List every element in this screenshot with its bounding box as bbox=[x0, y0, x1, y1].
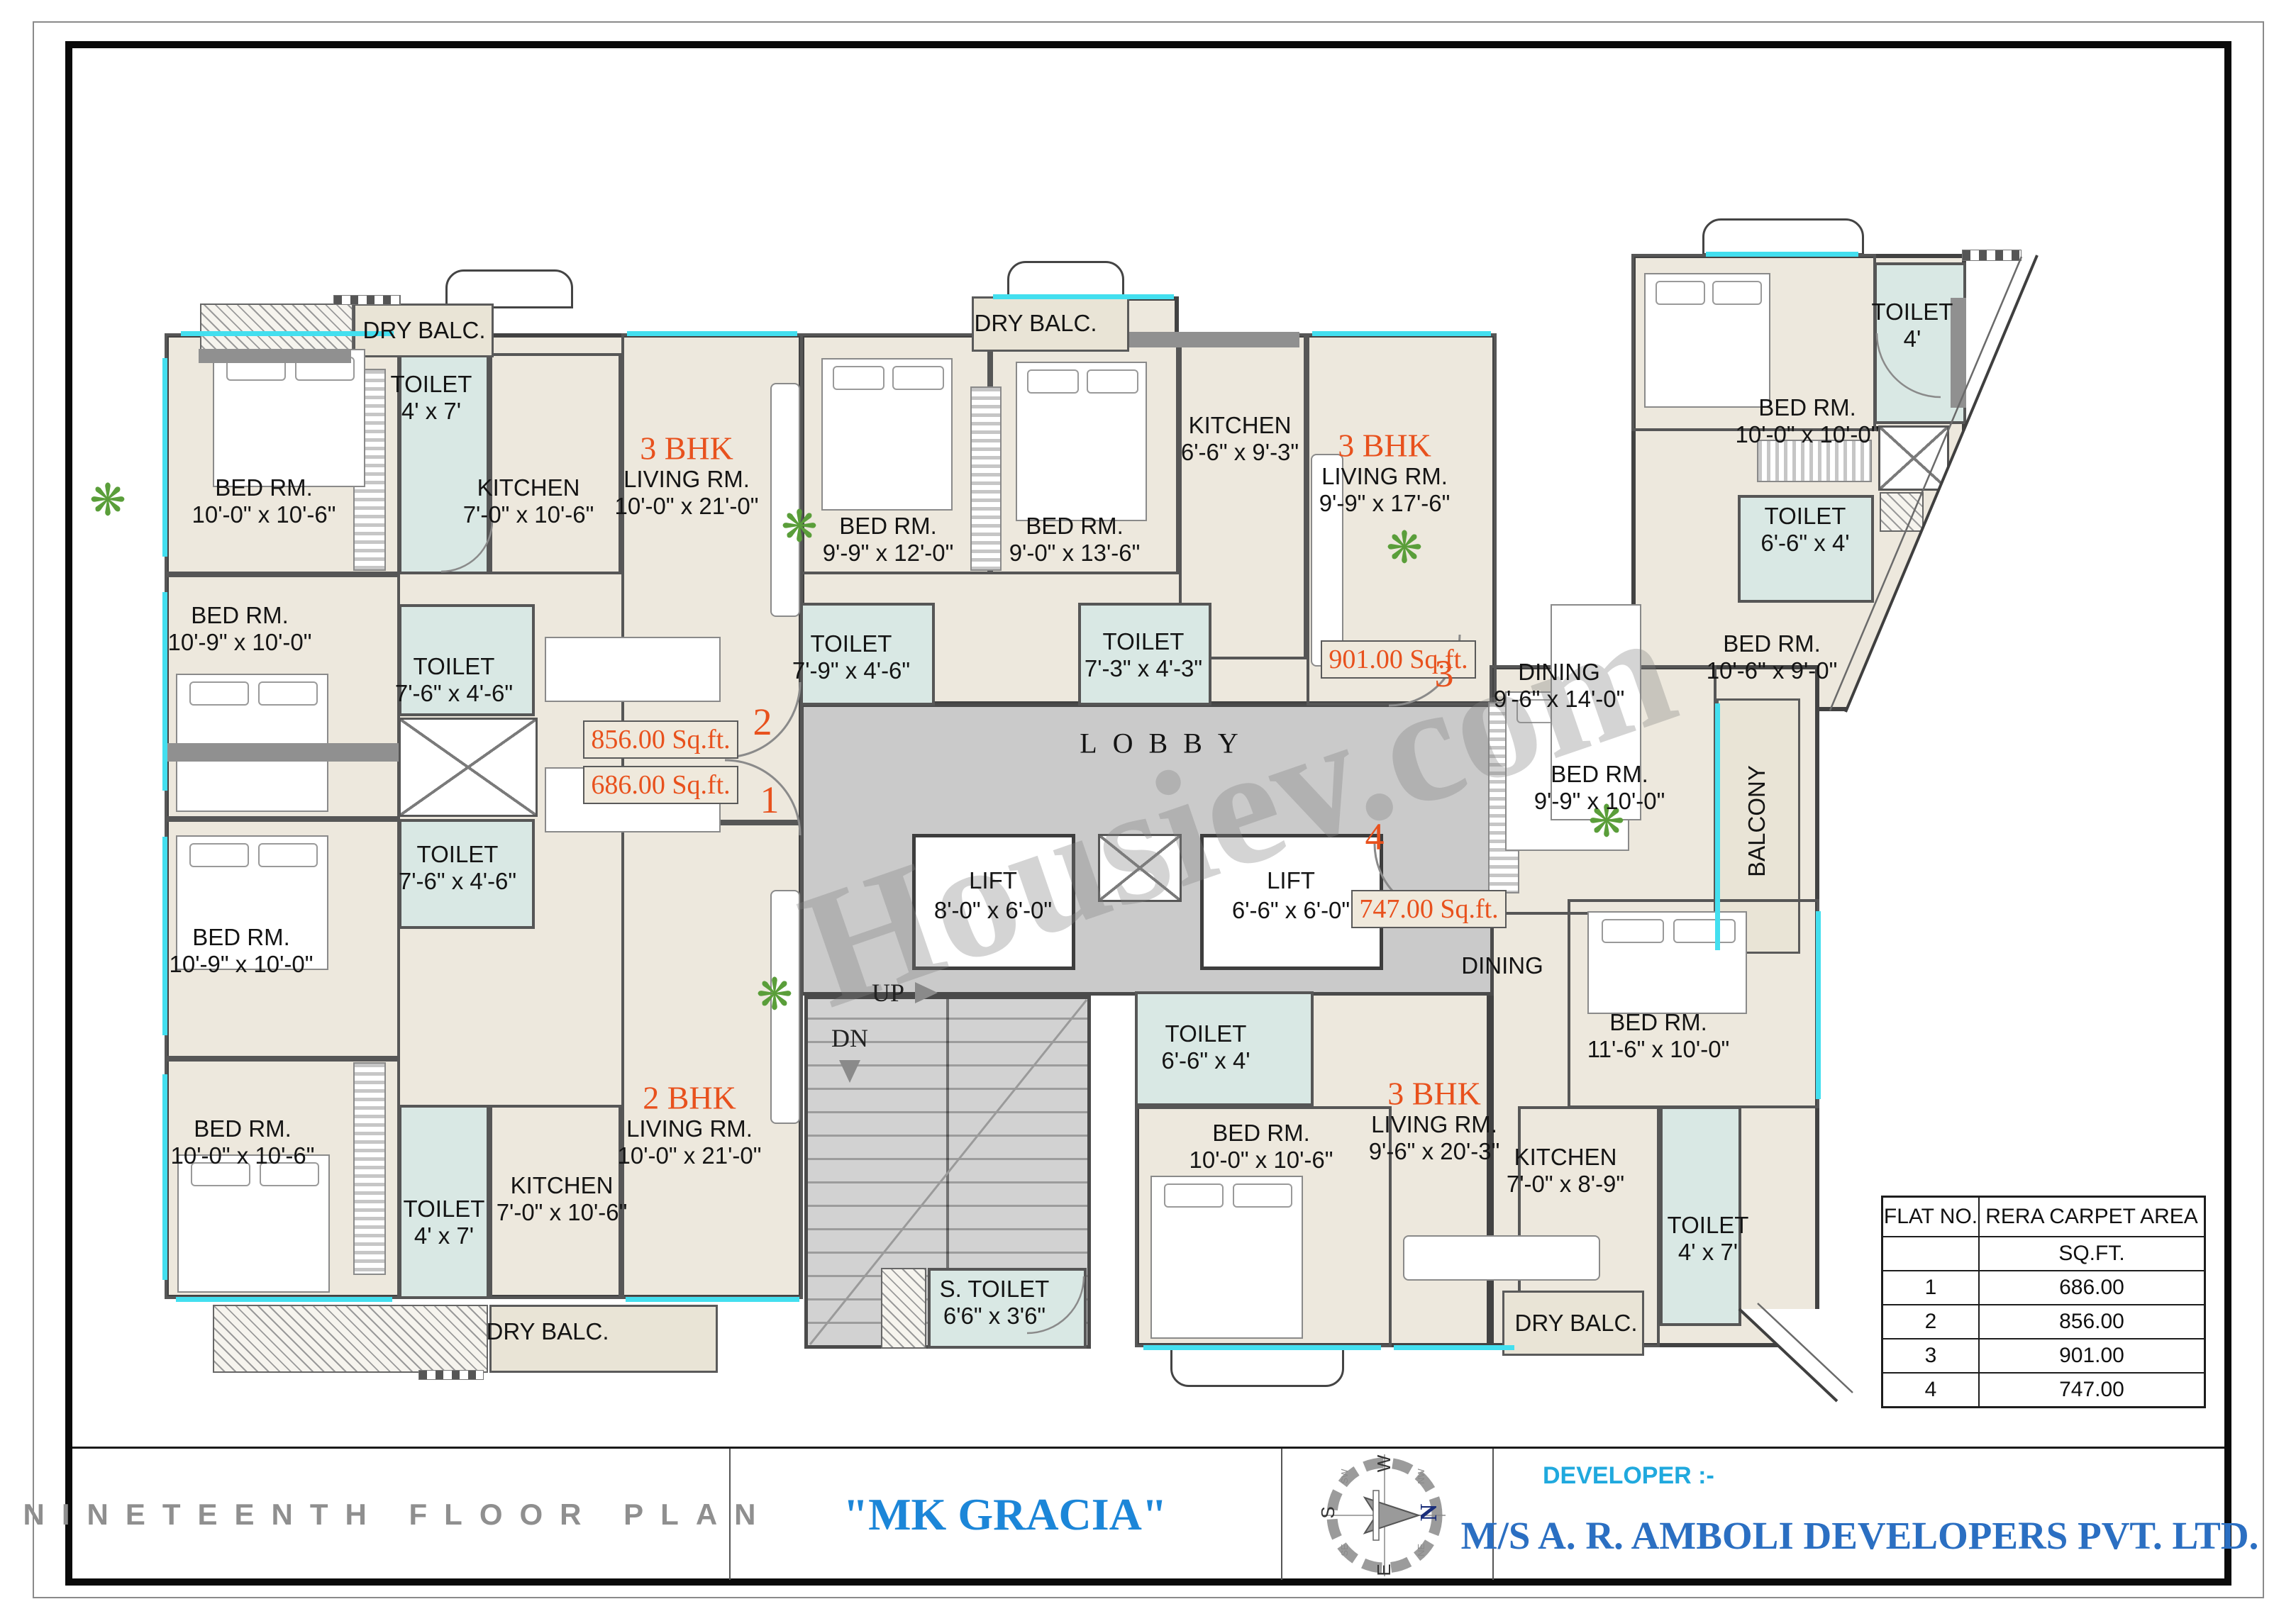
pillow bbox=[189, 843, 249, 867]
room-dims-toilet-f2b: 7'-6" x 4'-6" bbox=[395, 680, 513, 707]
room-label-bed-f4a: BED RM. bbox=[1551, 761, 1648, 788]
developer-name: M/S A. R. AMBOLI DEVELOPERS PVT. LTD. bbox=[1495, 1449, 2224, 1601]
room-label-dry-balc-f1: DRY BALC. bbox=[486, 1318, 609, 1345]
duct-between-lifts bbox=[1098, 834, 1182, 902]
table-header-carpet-area: RERA CARPET AREA bbox=[1978, 1198, 2204, 1236]
room-label-bed-f3a: BED RM. bbox=[839, 513, 937, 540]
room-label-bed-tr: BED RM. bbox=[1758, 394, 1856, 421]
room-dims-kitchen-f4: 7'-0" x 8'-9" bbox=[1507, 1171, 1624, 1198]
table-cell-area: 686.00 bbox=[1978, 1271, 2204, 1304]
flat-dims-f4: 9'-6" x 20'-3" bbox=[1369, 1138, 1500, 1165]
room-dims-dining-f3: 9'-6" x 14'-0" bbox=[1494, 686, 1625, 713]
table-cell-flat: 2 bbox=[1883, 1305, 1978, 1338]
footer-divider bbox=[1281, 1449, 1282, 1580]
flat-type-f2: 3 BHK bbox=[640, 430, 733, 467]
bay-window-top-right bbox=[1702, 218, 1864, 255]
compass-south: S bbox=[1317, 1506, 1338, 1518]
room-label-dry-balc-tl: DRY BALC. bbox=[362, 317, 485, 344]
flat-dims-f1: 10'-0" x 21'-0" bbox=[618, 1142, 762, 1169]
room-dims-kitchen-f1: 7'-0" x 10'-6" bbox=[497, 1199, 628, 1226]
balc-wall bbox=[1129, 332, 1299, 347]
room-dims-kitchen-f2: 7'-0" x 10'-6" bbox=[463, 501, 594, 528]
furniture-bed bbox=[213, 349, 365, 487]
room-label-dry-balc-f4: DRY BALC. bbox=[1514, 1310, 1637, 1337]
pillow bbox=[1602, 919, 1664, 943]
plant-icon: ❋ bbox=[1386, 522, 1423, 574]
table-row: 4 747.00 bbox=[1883, 1372, 2204, 1406]
table-cell-flat: 1 bbox=[1883, 1271, 1978, 1304]
window bbox=[162, 358, 167, 557]
room-label-toilet-tr: TOILET bbox=[1872, 299, 1953, 325]
lift2-label: LIFT bbox=[1267, 867, 1315, 894]
room-dims-kitchen-f3: 6'-6" x 9'-3" bbox=[1181, 439, 1299, 466]
pillow bbox=[1087, 369, 1138, 394]
room-label-toilet-f3b: TOILET bbox=[1103, 628, 1185, 655]
room-label-kitchen-f4: KITCHEN bbox=[1514, 1144, 1617, 1171]
pillow bbox=[189, 681, 249, 706]
table-cell-flat: 3 bbox=[1883, 1339, 1978, 1372]
room-dims-toilet-f1a: 7'-6" x 4'-6" bbox=[399, 868, 516, 895]
table-row: 3 901.00 bbox=[1883, 1338, 2204, 1372]
window bbox=[181, 331, 394, 336]
compass-icon: W S E N SW NW SE NE bbox=[1314, 1448, 1455, 1583]
room-dims-bed-f3a: 9'-9" x 12'-0" bbox=[823, 540, 954, 567]
room-dims-bed-f4a: 9'-9" x 10'-0" bbox=[1534, 788, 1665, 815]
flat-type-f3: 3 BHK bbox=[1338, 427, 1431, 464]
compass-se: SE bbox=[1339, 1544, 1350, 1556]
window bbox=[176, 1297, 392, 1302]
dotted-parapet bbox=[1962, 250, 2022, 261]
furniture-bed bbox=[821, 358, 953, 511]
room-label-s-toilet: S. TOILET bbox=[940, 1276, 1050, 1303]
flat-dims-f2: 10'-0" x 21'-0" bbox=[615, 493, 759, 520]
room-label-kitchen-f3: KITCHEN bbox=[1189, 412, 1292, 439]
flat-marker-m2: 2 bbox=[753, 700, 772, 744]
table-row: 2 856.00 bbox=[1883, 1304, 2204, 1338]
room-label-kitchen-f2: KITCHEN bbox=[477, 474, 580, 501]
window bbox=[162, 1074, 167, 1280]
room-dims-toilet-tr: 4' bbox=[1904, 325, 1921, 352]
dn-arrow-icon bbox=[839, 1060, 860, 1083]
window bbox=[626, 1297, 799, 1302]
window bbox=[1394, 1345, 1514, 1350]
room-label-bed-f4c: BED RM. bbox=[1212, 1120, 1310, 1147]
room-dims-toilet-tl: 4' x 7' bbox=[401, 398, 461, 425]
room-dims-bed-f4c: 10'-0" x 10'-6" bbox=[1189, 1147, 1333, 1174]
room-label-toilet-f2b: TOILET bbox=[414, 653, 495, 680]
flat-type-f4: 3 BHK bbox=[1387, 1075, 1481, 1113]
area-box-a856: 856.00 Sq.ft. bbox=[583, 720, 738, 759]
compass-north: N bbox=[1416, 1503, 1442, 1521]
pillow bbox=[1656, 281, 1705, 305]
room-dims-toilet-f3a: 7'-9" x 4'-6" bbox=[792, 657, 910, 684]
stairs-up-label: UP bbox=[872, 978, 904, 1008]
lift1-dims: 8'-0" x 6'-0" bbox=[934, 897, 1052, 924]
table-cell-flat: 4 bbox=[1883, 1374, 1978, 1406]
window bbox=[627, 331, 797, 336]
window bbox=[1715, 703, 1720, 950]
window bbox=[1312, 331, 1491, 336]
pillow bbox=[833, 366, 884, 390]
up-arrow-icon bbox=[915, 982, 938, 1003]
compass-needle-tail bbox=[1373, 1491, 1379, 1540]
room-label-toilet-r: TOILET bbox=[1765, 503, 1846, 530]
room-dims-s-toilet: 6'6" x 3'6" bbox=[943, 1303, 1046, 1330]
pillow bbox=[892, 366, 944, 390]
flat-dims-f3: 9'-9" x 17'-6" bbox=[1319, 490, 1451, 517]
table-header-row: FLAT NO. RERA CARPET AREA bbox=[1883, 1198, 2204, 1236]
table-unit-blank bbox=[1883, 1237, 1978, 1270]
plant-icon: ❋ bbox=[781, 501, 818, 552]
room-dims-toilet-f4a: 4' x 7' bbox=[1678, 1239, 1738, 1266]
lobby-label: LOBBY bbox=[1080, 727, 1254, 760]
furniture-bed bbox=[1150, 1176, 1303, 1339]
hatch-dry-balc-f1 bbox=[213, 1305, 488, 1373]
room-dims-toilet-r: 6'-6" x 4' bbox=[1760, 530, 1849, 557]
room-label-toilet-f4b: TOILET bbox=[1165, 1020, 1247, 1047]
duct-tr bbox=[1878, 425, 1949, 491]
room-dims-bed-f3b: 9'-0" x 13'-6" bbox=[1009, 540, 1141, 567]
plant-icon: ❋ bbox=[89, 474, 126, 526]
room-label-bed-f1a: BED RM. bbox=[192, 924, 290, 951]
plant-icon: ❋ bbox=[756, 969, 793, 1020]
dotted-parapet bbox=[418, 1370, 484, 1380]
window bbox=[1816, 911, 1821, 1099]
room-label-dining-f3: DINING bbox=[1518, 659, 1600, 686]
furniture-table bbox=[545, 637, 721, 702]
table-header-flat-no: FLAT NO. bbox=[1883, 1198, 1978, 1236]
flat-room-f3: LIVING RM. bbox=[1321, 463, 1448, 490]
duct-mid-west bbox=[399, 718, 538, 817]
window bbox=[993, 294, 1174, 299]
flat-room-f2: LIVING RM. bbox=[623, 466, 750, 493]
furniture-sofa bbox=[1403, 1235, 1600, 1281]
project-name: "MK GRACIA" bbox=[731, 1449, 1280, 1580]
compass-sw: SW bbox=[1339, 1469, 1350, 1484]
flat-marker-m1: 1 bbox=[760, 778, 780, 822]
compass-west: W bbox=[1373, 1454, 1394, 1472]
flat-marker-m3: 3 bbox=[1435, 652, 1454, 696]
hatch-tr bbox=[1880, 492, 1924, 532]
room-label-toilet-tl: TOILET bbox=[391, 371, 472, 398]
area-box-a686: 686.00 Sq.ft. bbox=[583, 766, 738, 804]
table-row: 1 686.00 bbox=[1883, 1270, 2204, 1304]
table-cell-area: 856.00 bbox=[1978, 1305, 2204, 1338]
floor-plan-sheet: ❋❋❋❋❋DRY BALC.TOILET4' x 7'BED RM.10'-0"… bbox=[0, 0, 2296, 1621]
room-label-bed-f3b: BED RM. bbox=[1026, 513, 1124, 540]
table-cell-area: 747.00 bbox=[1978, 1374, 2204, 1406]
room-label-bed-f2b: BED RM. bbox=[191, 602, 289, 629]
room-dims-bed-f2b: 10'-9" x 10'-0" bbox=[168, 629, 312, 656]
table-cell-area: 901.00 bbox=[1978, 1339, 2204, 1372]
lift1-label: LIFT bbox=[969, 867, 1017, 894]
wardrobe bbox=[353, 1062, 386, 1275]
compass-ne: NE bbox=[1416, 1544, 1426, 1556]
window bbox=[1706, 252, 1858, 257]
plan-title: NINETEENTH FLOOR PLAN bbox=[68, 1449, 728, 1580]
flat-room-f1: LIVING RM. bbox=[626, 1115, 753, 1142]
window bbox=[162, 592, 167, 791]
room-label-dry-balc-tm: DRY BALC. bbox=[974, 310, 1097, 337]
pillow bbox=[258, 843, 318, 867]
room-label-bed-r: BED RM. bbox=[1723, 630, 1821, 657]
furniture-bed bbox=[1644, 273, 1770, 408]
room-kitchen-f2 bbox=[489, 353, 621, 574]
pillow bbox=[1164, 1183, 1224, 1208]
pillow bbox=[258, 681, 318, 706]
bay-window-bottom bbox=[1170, 1346, 1344, 1387]
room-dims-toilet-f3b: 7'-3" x 4'-3" bbox=[1085, 655, 1202, 682]
table-unit-label: SQ.FT. bbox=[1978, 1237, 2204, 1270]
room-dims-bed-f1a: 10'-9" x 10'-0" bbox=[170, 951, 314, 978]
furniture-bed bbox=[1016, 362, 1147, 521]
room-dims-bed-tr: 10'-0" x 10'-0" bbox=[1736, 421, 1880, 448]
room-dims-bed-f4b: 11'-6" x 10'-0" bbox=[1587, 1036, 1730, 1063]
room-dims-bed-f2a: 10'-0" x 10'-6" bbox=[192, 501, 336, 528]
pillow bbox=[1673, 919, 1736, 943]
room-label-toilet-f4a: TOILET bbox=[1668, 1212, 1749, 1239]
lift2-dims: 6'-6" x 6'-0" bbox=[1232, 897, 1350, 924]
bay-window-top-left bbox=[445, 269, 573, 308]
room-dims-bed-r: 10'-6" x 9'-0" bbox=[1707, 657, 1838, 684]
room-label-dining-f4: DINING bbox=[1461, 952, 1543, 979]
room-label-toilet-f1a: TOILET bbox=[417, 841, 499, 868]
pillow bbox=[1712, 281, 1762, 305]
hatch-s-toilet bbox=[881, 1268, 926, 1349]
pillow bbox=[1233, 1183, 1292, 1208]
balc-wall bbox=[199, 349, 351, 363]
furniture-bed bbox=[177, 1154, 330, 1293]
room-label-toilet-f1b: TOILET bbox=[404, 1196, 485, 1222]
room-label-bed-f2a: BED RM. bbox=[215, 474, 313, 501]
flat-room-f4: LIVING RM. bbox=[1371, 1111, 1497, 1138]
area-box-a747: 747.00 Sq.ft. bbox=[1351, 890, 1507, 928]
flat-type-f1: 2 BHK bbox=[643, 1079, 736, 1117]
rera-area-table: FLAT NO. RERA CARPET AREA SQ.FT. 1 686.0… bbox=[1881, 1196, 2206, 1408]
window bbox=[1143, 1345, 1381, 1350]
room-label-toilet-f3a: TOILET bbox=[811, 630, 892, 657]
compass-east: E bbox=[1373, 1564, 1394, 1576]
window bbox=[162, 837, 167, 1035]
room-label-bed-f1b: BED RM. bbox=[194, 1115, 292, 1142]
room-label-kitchen-f1: KITCHEN bbox=[511, 1172, 614, 1199]
compass-nw: NW bbox=[1416, 1468, 1426, 1483]
table-unit-row: SQ.FT. bbox=[1883, 1236, 2204, 1270]
party-wall bbox=[165, 743, 399, 762]
room-dims-toilet-f1b: 4' x 7' bbox=[414, 1222, 474, 1249]
pillow bbox=[1027, 369, 1079, 394]
flat-marker-m4: 4 bbox=[1365, 815, 1385, 859]
room-label-balcony: BALCONY bbox=[1743, 765, 1770, 877]
dotted-parapet bbox=[333, 295, 401, 305]
furniture-bed bbox=[1587, 911, 1747, 1014]
room-dims-toilet-f4b: 6'-6" x 4' bbox=[1161, 1047, 1250, 1074]
room-dims-bed-f1b: 10'-0" x 10'-6" bbox=[171, 1142, 315, 1169]
room-label-bed-f4b: BED RM. bbox=[1609, 1009, 1707, 1036]
wardrobe bbox=[970, 386, 1002, 571]
stairs-dn-label: DN bbox=[831, 1023, 868, 1053]
